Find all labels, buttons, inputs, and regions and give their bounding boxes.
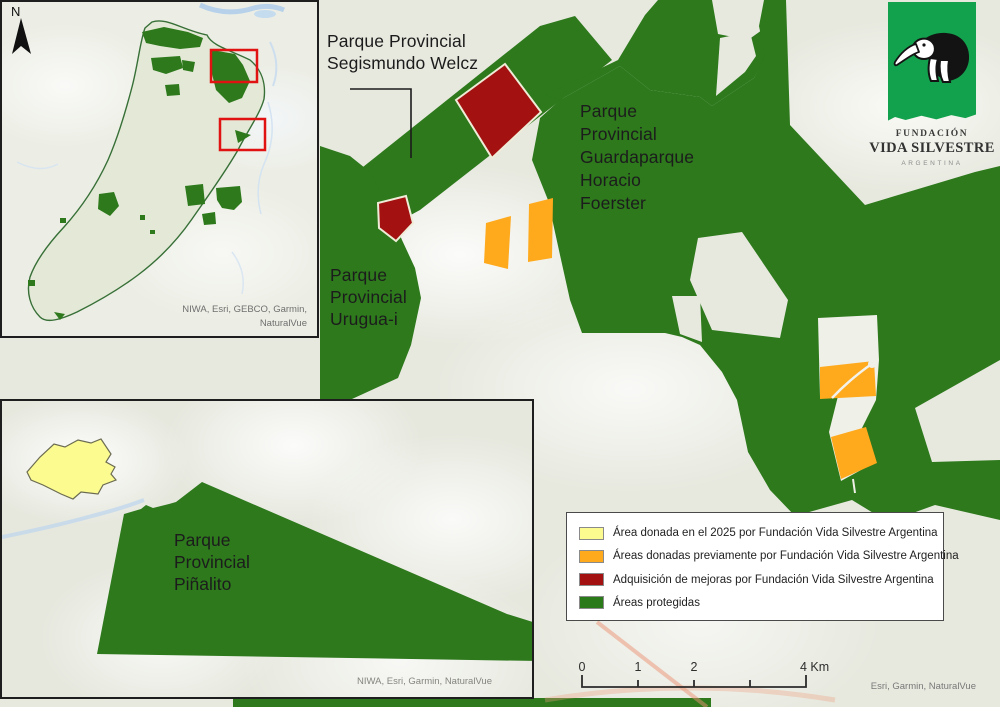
scalebar-label-4km: 4 Km [800,660,829,674]
label-parque-segismundo-welcz: Parque Provincial Segismundo Welcz [327,30,478,74]
logo-green-block [888,2,976,123]
legend-item-mejoras: Adquisición de mejoras por Fundación Vid… [579,571,933,589]
pinalito-protected-polygon [97,482,534,661]
legend-swatch-red [579,573,604,586]
legend-swatch-yellow [579,527,604,540]
legend-item-protected: Áreas protegidas [579,594,933,612]
legend-swatch-orange [579,550,604,563]
pinalito-inset-map[interactable]: Parque Provincial Piñalito NIWA, Esri, G… [0,399,534,699]
conservation-map-export: Parque Provincial Segismundo Welcz Parqu… [0,0,1000,707]
anteater-icon [888,2,976,122]
north-arrow: N [8,4,38,56]
north-arrow-icon [8,16,38,68]
pinalito-inset-layers [2,401,534,699]
logo-text-fundacion: FUNDACIÓN [869,129,995,139]
label-parque-guardaparque-foerster: Parque Provincial Guardaparque Horacio F… [580,100,694,215]
legend-item-donated-2025: Área donada en el 2025 por Fundación Vid… [579,524,933,542]
donated-area-polygon [484,216,511,269]
overview-inset-layers [2,2,319,338]
bottom-green-strip [233,698,711,707]
donated-2025-polygon [27,439,116,499]
fundacion-vida-silvestre-logo: FUNDACIÓN VIDA SILVESTRE ARGENTINA [869,0,995,167]
legend-item-donated-previous: Áreas donadas previamente por Fundación … [579,547,933,565]
scalebar-label-2: 2 [691,660,698,674]
label-parque-uruguai: Parque Provincial Urugua-i [330,264,407,331]
main-attribution: Esri, Garmin, NaturalVue [871,680,976,693]
pinalito-attribution: NIWA, Esri, Garmin, NaturalVue [357,675,492,688]
scalebar-label-1: 1 [635,660,642,674]
overview-inset-map[interactable]: N NIWA, Esri, GEBCO, Garmin, NaturalVue [0,0,319,338]
overview-attribution: NIWA, Esri, GEBCO, Garmin, NaturalVue [182,303,307,330]
label-parque-pinalito: Parque Provincial Piñalito [174,529,250,596]
legend: Área donada en el 2025 por Fundación Vid… [566,512,944,621]
donated-area-polygon [528,198,553,262]
logo-text-argentina: ARGENTINA [869,160,995,167]
scalebar-label-0: 0 [579,660,586,674]
logo-text-vida-silvestre: VIDA SILVESTRE [869,140,995,157]
corridor-dot [868,360,876,368]
legend-swatch-green [579,596,604,609]
